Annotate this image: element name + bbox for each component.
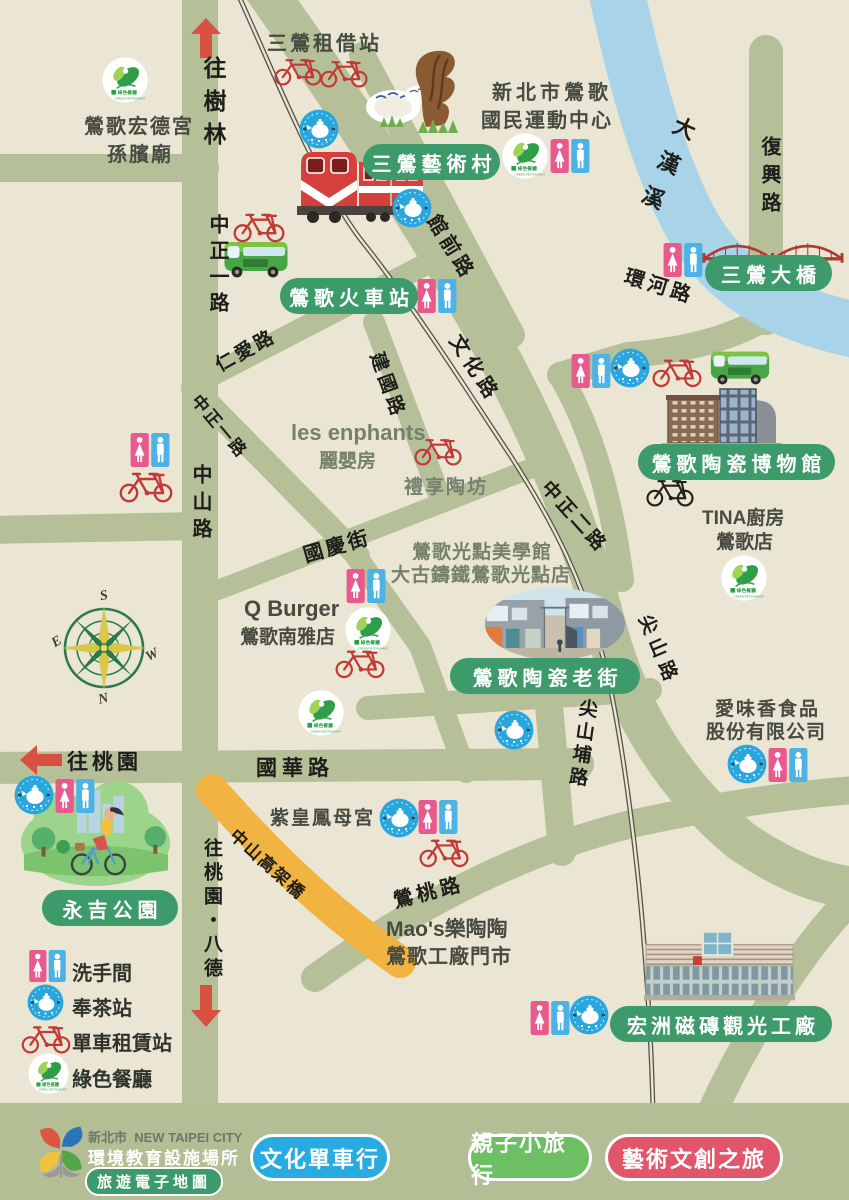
compass-e: E — [52, 633, 65, 651]
direction-taoyuan: 往桃園 — [67, 746, 142, 776]
toilet-icon — [768, 748, 808, 782]
button-family-trip[interactable]: 親子小旅行 — [468, 1134, 592, 1181]
tea-station-icon — [299, 109, 339, 149]
toilet-icon — [571, 354, 611, 388]
arrow-left-icon — [20, 744, 62, 776]
poi-dagu-castiron: 大古鑄鐵鶯歌光點店 — [391, 560, 571, 587]
poi-tina-kitchen: TINA廚房 — [702, 503, 784, 530]
green-restaurant-icon — [298, 690, 344, 736]
green-restaurant-icon — [721, 555, 767, 601]
footer-org: 環境教育設施場所 — [88, 1144, 240, 1169]
poi-hongde-temple: 鶯歌宏德宮 — [84, 110, 194, 139]
poi-sunbin-temple: 孫臏廟 — [107, 138, 173, 167]
footer-city-en: NEW TAIPEI CITY — [134, 1130, 242, 1145]
green-restaurant-icon — [502, 133, 548, 179]
tea-station-icon — [379, 798, 419, 838]
tea-station-icon — [727, 744, 767, 784]
bus-icon — [223, 239, 289, 279]
bus-icon — [709, 349, 771, 386]
footer-city: 新北市 — [88, 1130, 127, 1145]
toilet-icon — [29, 950, 66, 982]
new-taipei-logo — [33, 1119, 89, 1185]
button-art-culture-tour[interactable]: 藝術文創之旅 — [605, 1134, 783, 1181]
toilet-icon — [346, 569, 386, 603]
bike-rental-icon — [319, 55, 369, 89]
tea-station-icon — [494, 710, 534, 750]
legend-label-green: 綠色餐廳 — [72, 1063, 152, 1092]
factory-illustration — [642, 930, 797, 1002]
arrow-up-icon — [190, 18, 222, 58]
footer-bar: 新北市 NEW TAIPEI CITY 環境教育設施場所 旅遊電子地圖 文化單車… — [0, 1103, 849, 1200]
arrow-down-icon — [190, 985, 222, 1027]
bike-rental-icon — [418, 833, 470, 869]
toilet-icon — [417, 279, 457, 313]
direction-shulin: 往樹林 — [196, 56, 230, 155]
compass-n: N — [96, 690, 111, 704]
poi-maos-pottery: Mao's樂陶陶 — [386, 913, 508, 943]
poi-liyingfang: 麗嬰房 — [319, 446, 376, 473]
bike-rental-icon — [20, 1020, 72, 1055]
bike-rental-icon — [334, 644, 386, 680]
road-guohua: 國華路 — [256, 752, 334, 782]
button-culture-bike-tour[interactable]: 文化單車行 — [250, 1134, 390, 1181]
toilet-icon — [130, 433, 170, 467]
road-zhongzheng-1: 中正一路 — [203, 214, 232, 318]
poi-qburger: Q Burger — [244, 596, 339, 622]
tea-station-icon — [610, 348, 650, 388]
road-zhongshan: 中山路 — [186, 464, 215, 545]
toilet-icon — [418, 800, 458, 834]
tea-station-icon — [14, 775, 54, 815]
poi-sports-center-2: 國民運動中心 — [481, 104, 613, 133]
poi-sports-center-1: 新北市鶯歌 — [492, 76, 612, 105]
poi-les-enphants: les enphants — [291, 420, 425, 446]
label-ceramics-museum[interactable]: 鶯歌陶瓷博物館 — [638, 444, 835, 480]
bike-rental-icon — [651, 353, 703, 389]
poi-zihuang-temple: 紫皇鳳母宮 — [270, 803, 375, 830]
label-yongji-park[interactable]: 永吉公園 — [42, 890, 178, 926]
poi-tina-branch: 鶯歌店 — [716, 527, 773, 554]
road-fuxing: 復興路 — [755, 136, 784, 220]
bike-rental-icon — [232, 207, 286, 244]
poi-maos-outlet: 鶯歌工廠門市 — [386, 940, 512, 969]
legend-label-tea: 奉茶站 — [72, 992, 132, 1021]
museum-illustration — [662, 383, 782, 449]
compass-s: S — [99, 588, 110, 604]
footer-badge: 旅遊電子地圖 — [85, 1167, 223, 1196]
poi-sanying-rental: 三鶯租借站 — [267, 27, 382, 56]
toilet-icon — [530, 1001, 570, 1035]
legend-label-toilet: 洗手間 — [72, 957, 132, 986]
label-ceramics-old-street[interactable]: 鶯歌陶瓷老街 — [450, 658, 640, 694]
compass-rose: S N E W — [52, 588, 156, 704]
old-street-photo — [483, 586, 627, 662]
tourist-map: 綠色餐廳 GREEN RESTAURANT — [0, 0, 849, 1200]
bike-rental-icon — [118, 466, 174, 504]
green-restaurant-icon — [102, 57, 148, 103]
label-horng-jou-factory[interactable]: 宏洲磁磚觀光工廠 — [610, 1006, 832, 1042]
poi-qburger-branch: 鶯歌南雅店 — [240, 622, 335, 649]
label-yingge-station[interactable]: 鶯歌火車站 — [280, 278, 418, 314]
label-sanying-art-village[interactable]: 三鶯藝術村 — [363, 144, 500, 180]
poi-aiweixiang-2: 股份有限公司 — [706, 717, 826, 744]
sculpture-illustration — [360, 45, 485, 140]
legend-label-bike: 單車租賃站 — [72, 1027, 172, 1056]
toilet-icon — [550, 139, 590, 173]
green-restaurant-icon — [28, 1053, 69, 1094]
tea-station-icon — [27, 984, 64, 1021]
poi-lixiang-pottery: 禮享陶坊 — [404, 472, 488, 499]
direction-taoyuan-bade: 往桃園・八德 — [198, 838, 225, 982]
bike-rental-icon — [273, 53, 323, 87]
tea-station-icon — [569, 995, 609, 1035]
toilet-icon — [55, 779, 95, 813]
label-sanying-bridge[interactable]: 三鶯大橋 — [705, 255, 832, 291]
